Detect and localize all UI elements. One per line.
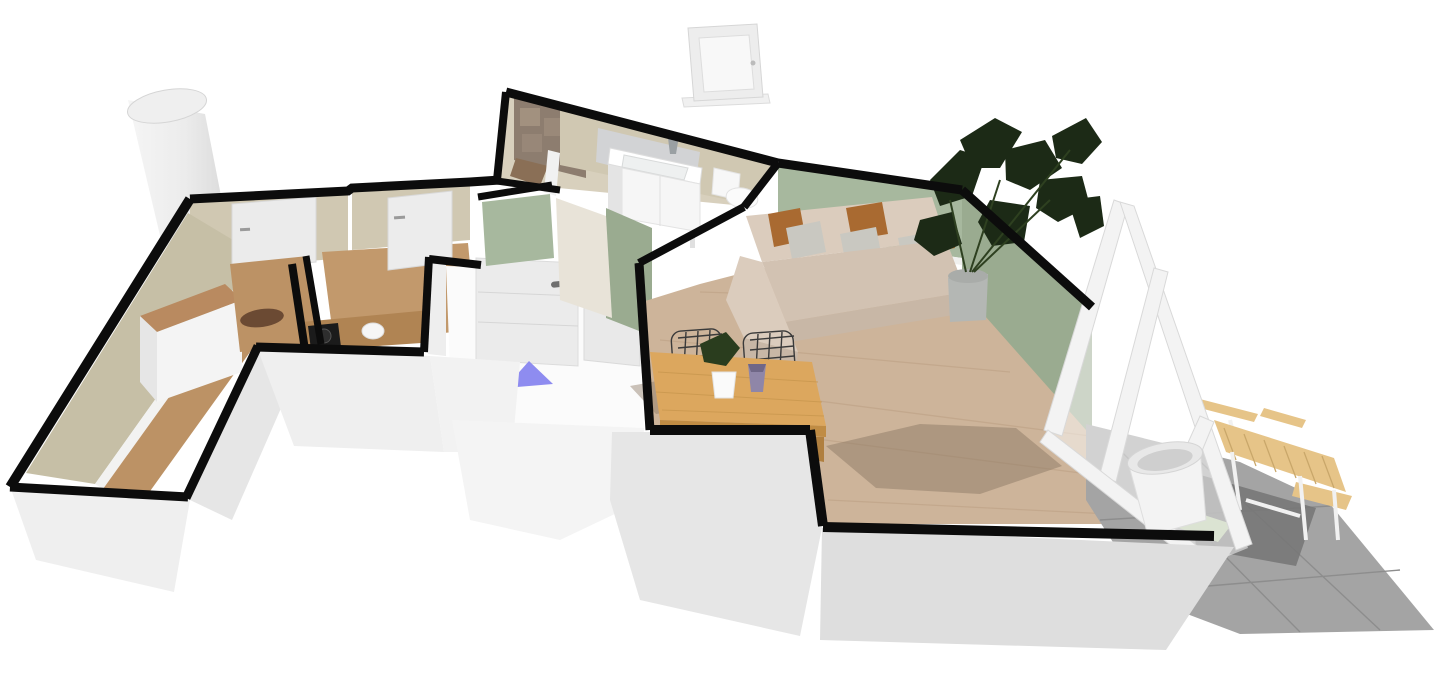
cabinet-knob bbox=[751, 61, 756, 66]
slab-living-front bbox=[820, 528, 1234, 650]
plant-pot-top bbox=[948, 269, 988, 283]
floorplan-3d-viewport[interactable] bbox=[0, 0, 1441, 675]
wall-kitchen-front bbox=[256, 347, 424, 352]
floating-wall-cabinet bbox=[682, 24, 770, 107]
table-plant-pot bbox=[712, 372, 736, 398]
floorplan-stage bbox=[0, 0, 1441, 675]
slab-kitchen-front bbox=[258, 350, 444, 452]
corridor-floor bbox=[556, 198, 612, 318]
purple-vase-top bbox=[748, 364, 766, 372]
kitchen-sink bbox=[362, 323, 384, 339]
slab-dining-front bbox=[610, 432, 822, 636]
cabinet-door bbox=[699, 35, 754, 92]
wall-entry-left bbox=[424, 257, 429, 352]
corridor-wall-left bbox=[482, 194, 554, 266]
vanity-side bbox=[608, 160, 622, 218]
slab-left-front bbox=[12, 492, 190, 592]
